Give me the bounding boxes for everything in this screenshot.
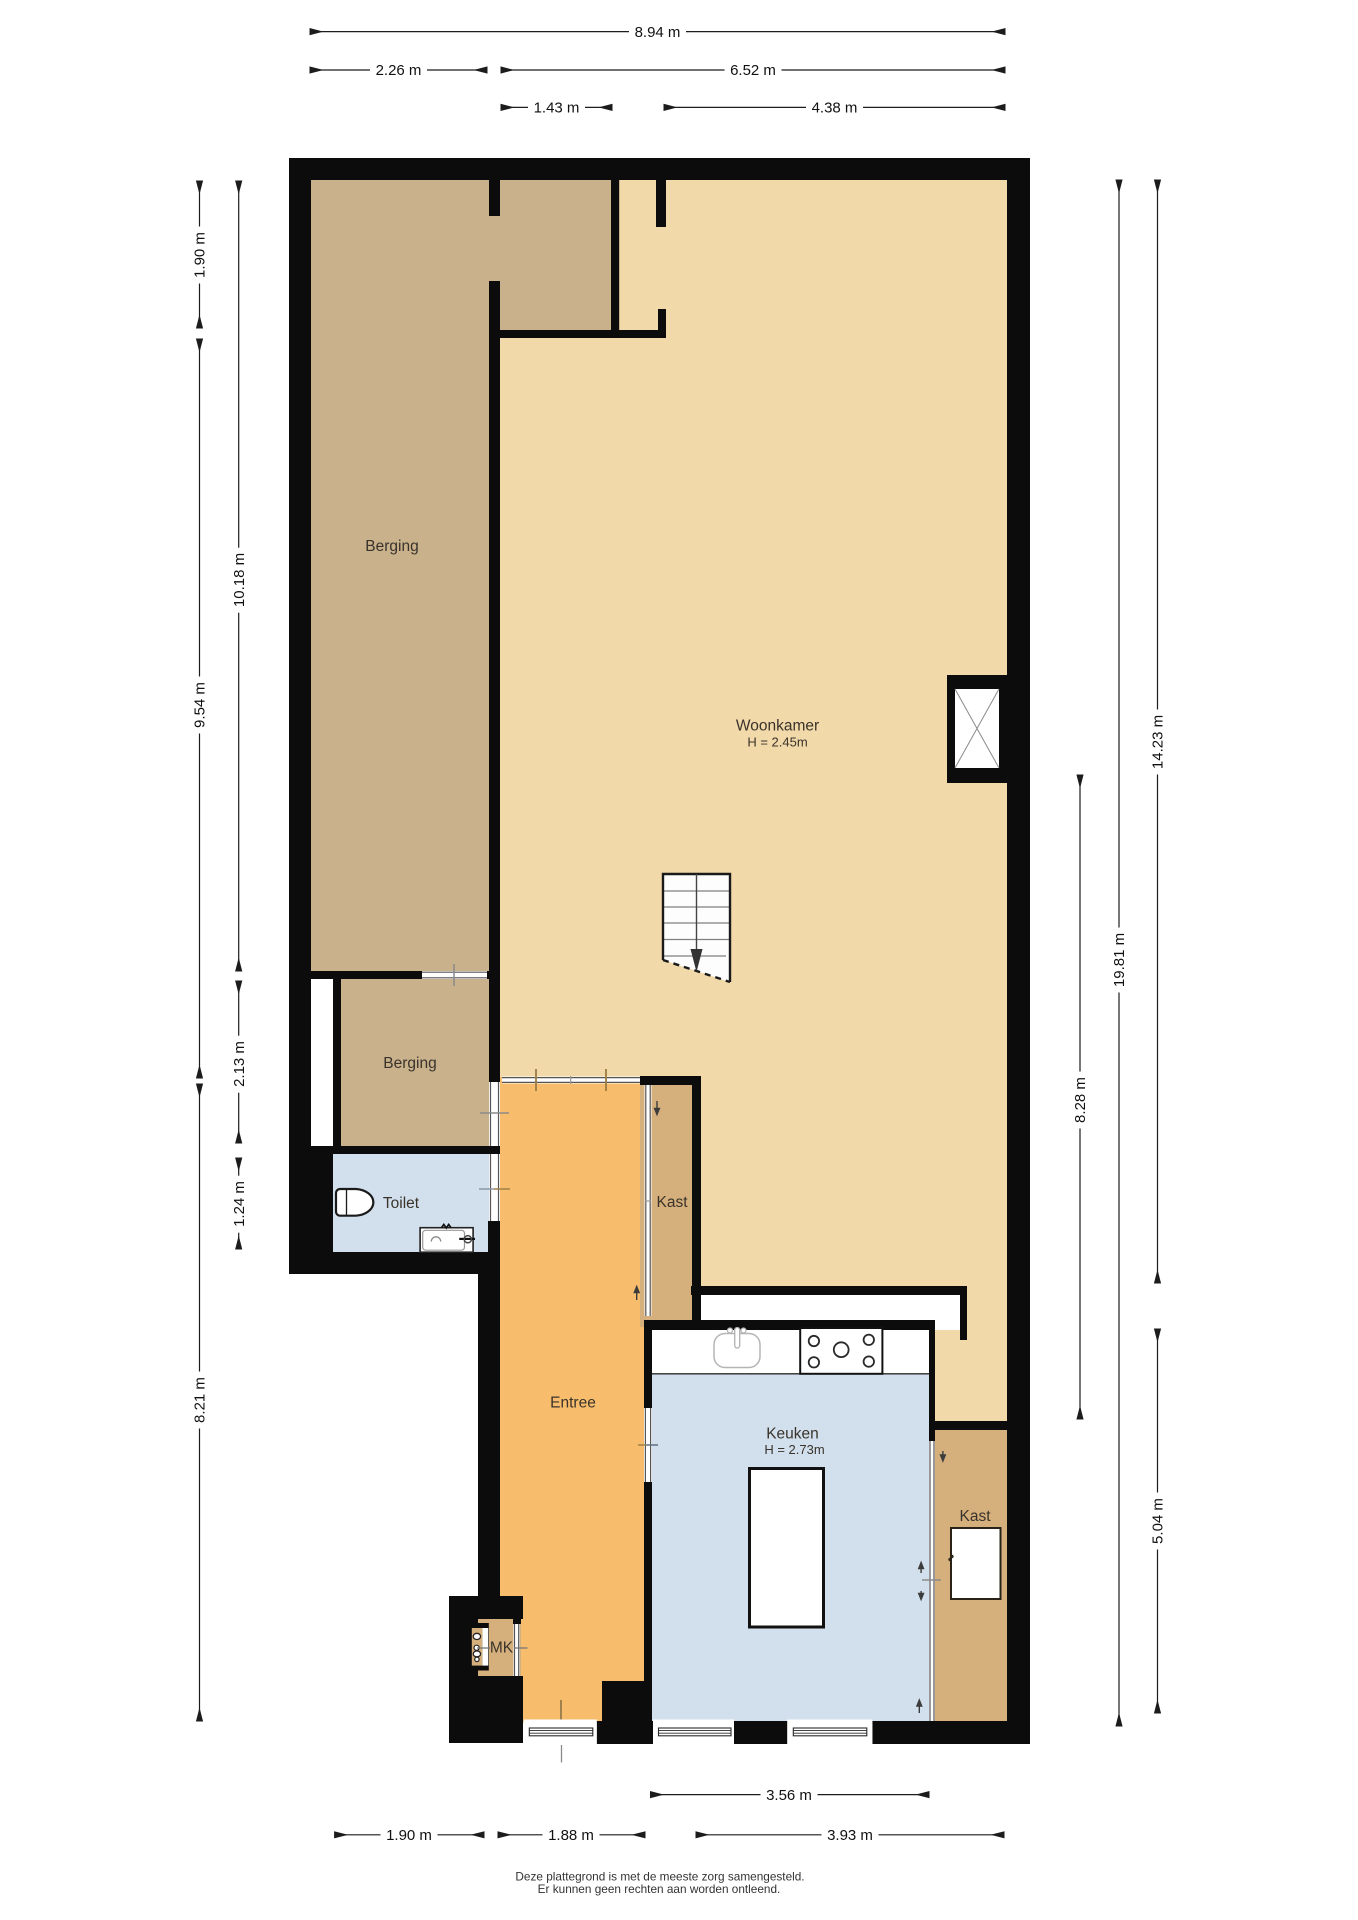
svg-text:2.13 m: 2.13 m	[231, 1041, 248, 1087]
svg-text:MK: MK	[490, 1640, 514, 1657]
svg-text:6.52 m: 6.52 m	[730, 62, 776, 79]
svg-text:Toilet: Toilet	[383, 1195, 420, 1212]
svg-text:3.93 m: 3.93 m	[827, 1827, 873, 1844]
svg-text:4.38 m: 4.38 m	[812, 100, 858, 117]
svg-text:8.28 m: 8.28 m	[1072, 1077, 1089, 1123]
svg-text:5.04 m: 5.04 m	[1150, 1498, 1167, 1544]
svg-text:Kast: Kast	[656, 1194, 688, 1211]
svg-text:1.90 m: 1.90 m	[386, 1827, 432, 1844]
svg-text:9.54 m: 9.54 m	[192, 682, 209, 728]
svg-text:14.23 m: 14.23 m	[1150, 715, 1167, 769]
svg-text:8.21 m: 8.21 m	[192, 1377, 209, 1423]
svg-text:Er kunnen geen rechten aan wor: Er kunnen geen rechten aan worden ontlee…	[538, 1882, 781, 1896]
svg-text:1.90 m: 1.90 m	[192, 232, 209, 278]
svg-text:Kast: Kast	[959, 1508, 991, 1525]
svg-text:Woonkamer: Woonkamer	[736, 718, 819, 735]
svg-text:1.88 m: 1.88 m	[548, 1827, 594, 1844]
svg-text:1.43 m: 1.43 m	[534, 100, 580, 117]
svg-text:Entree: Entree	[550, 1395, 596, 1412]
svg-text:Berging: Berging	[365, 538, 418, 555]
svg-text:2.26 m: 2.26 m	[376, 62, 422, 79]
svg-text:H = 2.45m: H = 2.45m	[747, 735, 807, 750]
svg-text:1.24 m: 1.24 m	[231, 1181, 248, 1227]
svg-text:8.94 m: 8.94 m	[635, 24, 681, 41]
svg-text:19.81 m: 19.81 m	[1111, 933, 1128, 987]
svg-text:H = 2.73m: H = 2.73m	[764, 1442, 824, 1457]
svg-text:Keuken: Keuken	[766, 1426, 819, 1443]
svg-text:10.18 m: 10.18 m	[231, 553, 248, 607]
svg-text:3.56 m: 3.56 m	[766, 1787, 812, 1804]
svg-text:Berging: Berging	[383, 1055, 436, 1072]
